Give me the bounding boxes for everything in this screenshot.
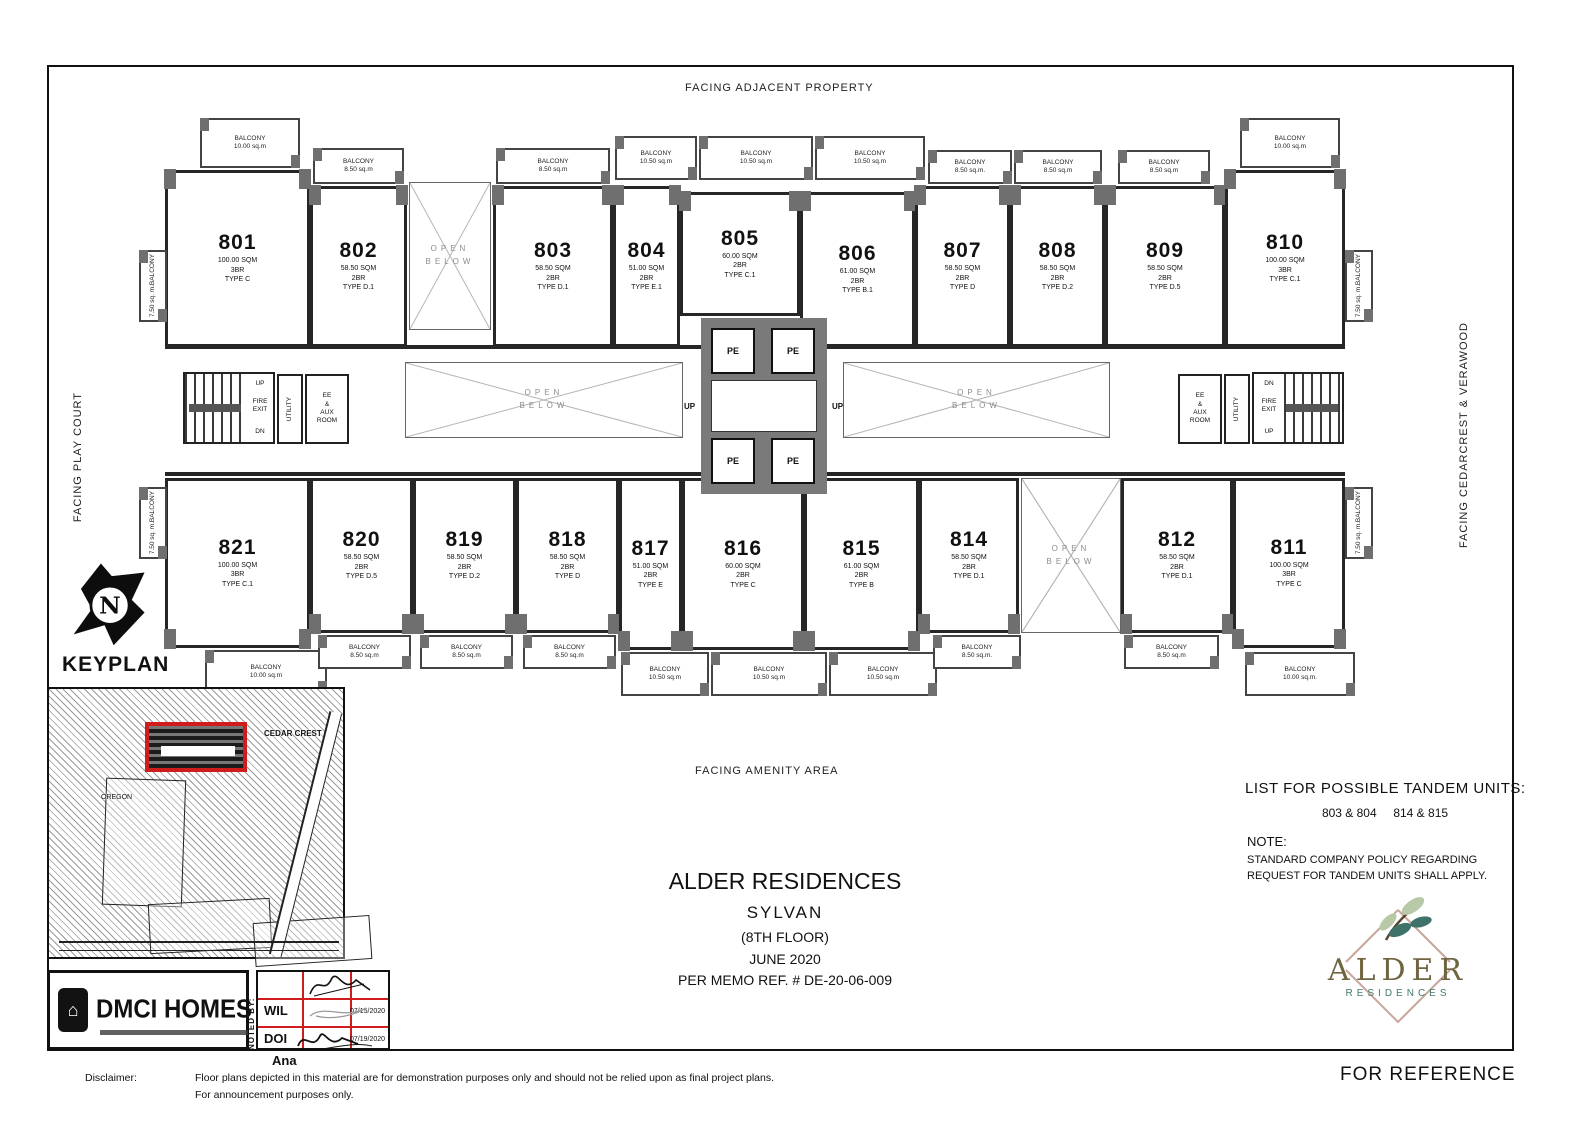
ee-aux-room-right: EE&AUXROOM <box>1178 374 1222 444</box>
unit-number: 821 <box>218 537 256 558</box>
passenger-elevator: PE <box>711 438 755 484</box>
up-label: UP <box>684 402 695 411</box>
unit-number: 815 <box>842 538 880 559</box>
open-below-bottom: OPENBELOW <box>1021 478 1121 633</box>
unit-number: 808 <box>1038 240 1076 261</box>
stair-dn-label: DN <box>247 428 273 436</box>
note-label: NOTE: <box>1247 834 1287 849</box>
unit-details: 100.00 SQM3BRTYPE C <box>218 256 257 284</box>
signature-scribble <box>294 1028 390 1052</box>
unit-number: 820 <box>342 529 380 550</box>
balcony-810-side: BALCONY7.50 sq. m. <box>1345 250 1373 322</box>
unit-number: 812 <box>1158 529 1196 550</box>
stair-up-label: UP <box>1256 428 1282 436</box>
unit-details: 51.00 SQM2BRTYPE E <box>633 562 668 590</box>
unit-809: 809 58.50 SQM2BRTYPE D.5 <box>1105 186 1225 347</box>
unit-number: 810 <box>1266 232 1304 253</box>
unit-number: 806 <box>838 243 876 264</box>
fire-exit-label: FIRE <box>253 398 268 405</box>
corridor-wall <box>165 345 701 349</box>
unit-817: 817 51.00 SQM2BRTYPE E <box>619 478 682 650</box>
signoff-initials-2: DOI <box>264 1031 287 1046</box>
unit-number: 801 <box>218 232 256 253</box>
keyplan-map: CEDAR CREST OREGON <box>47 687 345 959</box>
passenger-elevator: PE <box>771 438 815 484</box>
svg-text:ALDER: ALDER <box>1327 953 1468 988</box>
sheet-building: SYLVAN <box>530 903 1040 923</box>
unit-details: 100.00 SQM3BRTYPE C.1 <box>1265 256 1304 284</box>
balcony-802: BALCONY8.50 sq.m <box>313 148 404 184</box>
unit-number: 807 <box>943 240 981 261</box>
unit-details: 61.00 SQM2BRTYPE B.1 <box>840 267 875 295</box>
unit-details: 58.50 SQM2BRTYPE D.2 <box>447 553 482 581</box>
open-below-corridor-right: OPENBELOW <box>843 362 1110 438</box>
stair-dn-label: DN <box>1256 380 1282 388</box>
facing-bottom-label: FACING AMENITY AREA <box>695 765 839 777</box>
sheet-memo-ref: PER MEMO REF. # DE-20-06-009 <box>530 972 1040 988</box>
tandem-pair-1: 803 & 804 <box>1322 806 1377 820</box>
balcony-817: BALCONY10.50 sq.m <box>621 652 709 696</box>
balcony-803: BALCONY8.50 sq.m <box>496 148 610 184</box>
keyplan-oregon-label: OREGON <box>101 794 132 801</box>
unit-number: 804 <box>627 240 665 261</box>
unit-number: 802 <box>339 240 377 261</box>
unit-808: 808 58.50 SQM2BRTYPE D.2 <box>1010 186 1105 347</box>
unit-820: 820 58.50 SQM2BRTYPE D.5 <box>310 478 413 633</box>
balcony-805: BALCONY10.50 sq.m <box>699 136 813 180</box>
unit-number: 818 <box>548 529 586 550</box>
signature-scribble <box>304 972 390 998</box>
balcony-818: BALCONY8.50 sq.m <box>523 635 616 669</box>
unit-number: 819 <box>445 529 483 550</box>
open-below-corridor-left: OPENBELOW <box>405 362 683 438</box>
unit-number: 817 <box>631 538 669 559</box>
unit-number: 805 <box>721 228 759 249</box>
sheet-title: ALDER RESIDENCES <box>530 868 1040 895</box>
unit-816: 816 60.00 SQM2BRTYPE C <box>682 478 804 650</box>
facing-left-label: FACING PLAY COURT <box>72 392 84 522</box>
note-line-2: REQUEST FOR TANDEM UNITS SHALL APPLY. <box>1247 870 1487 882</box>
unit-804: 804 51.00 SQM2BRTYPE E.1 <box>613 186 680 347</box>
balcony-804: BALCONY10.50 sq.m <box>615 136 697 180</box>
unit-801: 801 100.00 SQM3BRTYPE C <box>165 170 310 347</box>
unit-818: 818 58.50 SQM2BRTYPE D <box>516 478 619 633</box>
dmci-tagline-strip <box>100 1030 248 1035</box>
unit-812: 812 58.50 SQM2BRTYPE D.1 <box>1121 478 1233 633</box>
unit-number: 809 <box>1146 240 1184 261</box>
balcony-807: BALCONY8.50 sq.m. <box>928 150 1012 184</box>
unit-details: 58.50 SQM2BRTYPE D.1 <box>341 264 376 292</box>
disclaimer-line-2: For announcement purposes only. <box>195 1089 354 1101</box>
open-below-top: OPENBELOW <box>409 182 491 330</box>
tandem-heading: LIST FOR POSSIBLE TANDEM UNITS: <box>1245 780 1525 797</box>
elevator-lobby <box>711 380 817 432</box>
unit-815: 815 61.00 SQM2BRTYPE B <box>804 478 919 650</box>
unit-810: 810 100.00 SQM3BRTYPE C.1 <box>1225 170 1345 347</box>
unit-number: 814 <box>950 529 988 550</box>
signoff-name: Ana <box>272 1053 297 1068</box>
keyplan-cedar-crest-label: CEDAR CREST <box>264 729 322 738</box>
alder-residences-logo: ALDER RESIDENCES <box>1318 892 1478 1032</box>
svg-text:RESIDENCES: RESIDENCES <box>1345 988 1450 999</box>
elevator-core: PE PE PE PE <box>701 318 827 494</box>
balcony-810-top: BALCONY10.00 sq.m <box>1240 118 1340 168</box>
unit-814: 814 58.50 SQM2BRTYPE D.1 <box>919 478 1019 633</box>
dmci-homes-wordmark: DMCI HOMES <box>96 995 252 1025</box>
balcony-808: BALCONY8.50 sq.m <box>1014 150 1102 184</box>
balcony-806: BALCONY10.50 sq.m <box>815 136 925 180</box>
unit-803: 803 58.50 SQM2BRTYPE D.1 <box>493 186 613 347</box>
unit-details: 100.00 SQM3BRTYPE C.1 <box>218 561 257 589</box>
tandem-pairs: 803 & 804 814 & 815 <box>1245 806 1525 820</box>
balcony-821-side: BALCONY7.50 sq. m. <box>139 487 167 559</box>
floor-plan-sheet: FACING ADJACENT PROPERTY FACING PLAY COU… <box>0 0 1588 1123</box>
balcony-811-side: BALCONY7.50 sq. m. <box>1345 487 1373 559</box>
svg-text:N: N <box>99 591 121 619</box>
utility-room-left: UTILITY <box>277 374 303 444</box>
unit-807: 807 58.50 SQM2BRTYPE D <box>915 186 1010 347</box>
signoff-initials-1: WIL <box>264 1003 288 1018</box>
unit-details: 58.50 SQM2BRTYPE D.1 <box>535 264 570 292</box>
unit-details: 58.50 SQM2BRTYPE D.5 <box>1147 264 1182 292</box>
unit-details: 58.50 SQM2BRTYPE D <box>550 553 585 581</box>
sheet-date: JUNE 2020 <box>530 951 1040 967</box>
unit-details: 58.50 SQM2BRTYPE D.1 <box>951 553 986 581</box>
balcony-819: BALCONY8.50 sq.m <box>420 635 513 669</box>
unit-details: 58.50 SQM2BRTYPE D.1 <box>1159 553 1194 581</box>
note-line-1: STANDARD COMPANY POLICY REGARDING <box>1247 854 1477 866</box>
unit-details: 60.00 SQM2BRTYPE C <box>725 562 760 590</box>
passenger-elevator: PE <box>771 328 815 374</box>
unit-details: 51.00 SQM2BRTYPE E.1 <box>629 264 664 292</box>
balcony-816: BALCONY10.50 sq.m <box>711 652 827 696</box>
disclaimer-line-1: Floor plans depicted in this material ar… <box>195 1072 774 1084</box>
unit-number: 816 <box>724 538 762 559</box>
signoff-table: WIL DOI 07/15/2020 07/19/2020 <box>256 970 390 1050</box>
unit-811: 811 100.00 SQM3BRTYPE C <box>1233 478 1345 648</box>
fire-exit-label: FIRE <box>1262 398 1277 405</box>
unit-details: 60.00 SQM2BRTYPE C.1 <box>722 252 757 280</box>
unit-number: 811 <box>1271 537 1308 558</box>
keyplan-highlighted-building <box>145 722 247 772</box>
balcony-812: BALCONY8.50 sq.m <box>1124 635 1219 669</box>
corridor-wall <box>827 472 1345 476</box>
balcony-811-bottom: BALCONY10.00 sq.m. <box>1245 652 1355 696</box>
utility-room-right: UTILITY <box>1224 374 1250 444</box>
unit-802: 802 58.50 SQM2BRTYPE D.1 <box>310 186 407 347</box>
facing-right-label: FACING CEDARCREST & VERAWOOD <box>1458 322 1470 548</box>
passenger-elevator: PE <box>711 328 755 374</box>
north-arrow-icon: N <box>62 558 158 658</box>
unit-details: 58.50 SQM2BRTYPE D <box>945 264 980 292</box>
balcony-809: BALCONY8.50 sq.m <box>1118 150 1210 184</box>
corridor-wall <box>165 472 701 476</box>
facing-top-label: FACING ADJACENT PROPERTY <box>685 82 874 94</box>
balcony-820: BALCONY8.50 sq.m <box>318 635 411 669</box>
noted-by-label: NOTED BY: <box>247 972 256 1050</box>
sheet-floor: (8TH FLOOR) <box>530 929 1040 945</box>
unit-805: 805 60.00 SQM2BRTYPE C.1 <box>680 192 800 316</box>
signature-scribble <box>304 1000 390 1024</box>
disclaimer-label: Disclaimer: <box>85 1072 137 1084</box>
stair-up-label: UP <box>247 380 273 388</box>
balcony-801-top: BALCONY10.00 sq.m <box>200 118 300 168</box>
fire-stair-left: UP FIREEXIT DN <box>183 372 275 444</box>
stair-rail <box>189 404 241 412</box>
tandem-pair-2: 814 & 815 <box>1393 806 1448 820</box>
unit-details: 58.50 SQM2BRTYPE D.5 <box>344 553 379 581</box>
balcony-814: BALCONY8.50 sq.m. <box>933 635 1021 669</box>
dmci-homes-logo: ⌂ DMCI HOMES <box>47 970 249 1050</box>
unit-details: 61.00 SQM2BRTYPE B <box>844 562 879 590</box>
up-label: UP <box>832 402 843 411</box>
dmci-house-icon: ⌂ <box>58 988 88 1032</box>
for-reference-label: FOR REFERENCE <box>1340 1064 1510 1086</box>
unit-821: 821 100.00 SQM3BRTYPE C.1 <box>165 478 310 648</box>
balcony-801-side: BALCONY7.50 sq. m. <box>139 250 167 322</box>
unit-details: 100.00 SQM3BRTYPE C <box>1269 561 1308 589</box>
corridor-wall <box>827 345 1345 349</box>
fire-stair-right: DN FIREEXIT UP <box>1252 372 1344 444</box>
ee-aux-room-left: EE&AUXROOM <box>305 374 349 444</box>
keyplan-road <box>59 941 339 951</box>
unit-number: 803 <box>534 240 572 261</box>
unit-details: 58.50 SQM2BRTYPE D.2 <box>1040 264 1075 292</box>
stair-rail <box>1286 404 1338 412</box>
keyplan-title: KEYPLAN <box>62 653 169 677</box>
balcony-815: BALCONY10.50 sq.m <box>829 652 937 696</box>
unit-819: 819 58.50 SQM2BRTYPE D.2 <box>413 478 516 633</box>
